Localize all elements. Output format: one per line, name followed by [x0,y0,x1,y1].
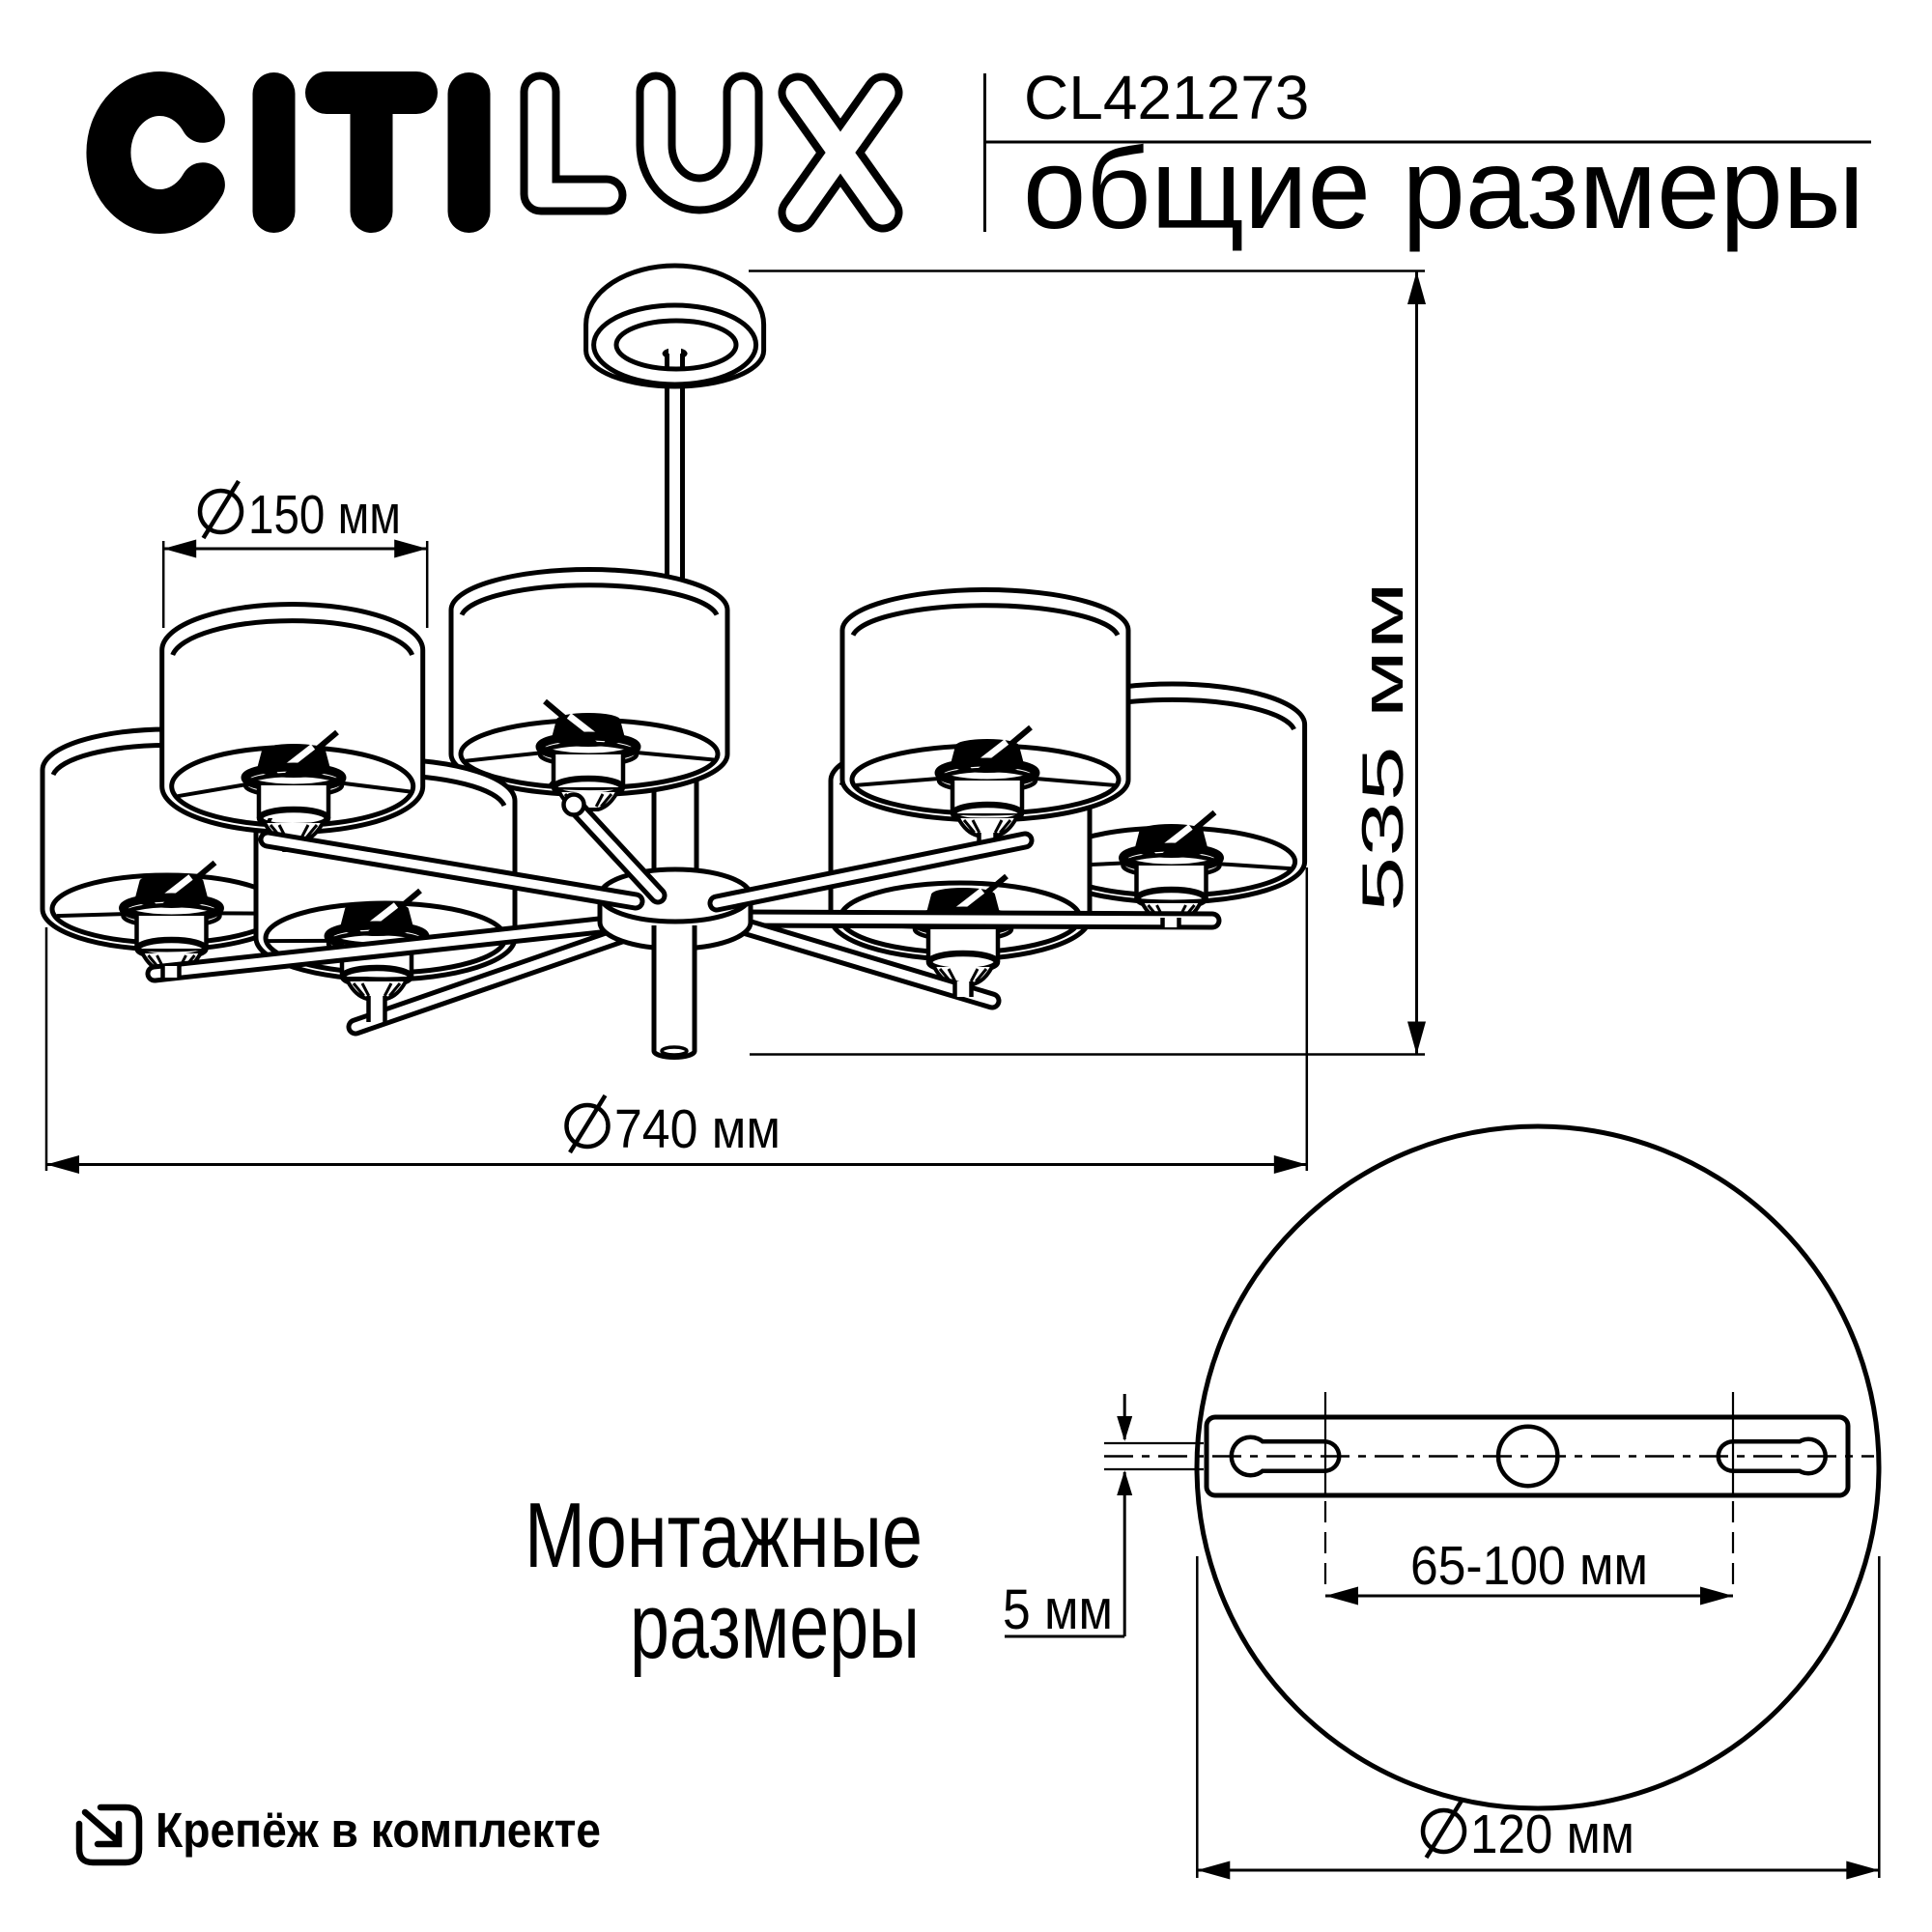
svg-text:Монтажные: Монтажные [525,1484,923,1587]
svg-text:Крепёж в комплекте: Крепёж в комплекте [156,1803,601,1858]
svg-text:общие размеры: общие размеры [1023,125,1864,253]
svg-text:65-100 мм: 65-100 мм [1410,1535,1648,1597]
svg-text:740 мм: 740 мм [614,1098,781,1160]
svg-text:5 мм: 5 мм [1003,1578,1113,1641]
svg-text:120 мм: 120 мм [1470,1804,1634,1865]
svg-text:размеры: размеры [630,1575,920,1678]
svg-text:CL421273: CL421273 [1024,63,1309,132]
svg-text:535 мм: 535 мм [1350,582,1415,912]
svg-text:150 мм: 150 мм [248,484,401,546]
